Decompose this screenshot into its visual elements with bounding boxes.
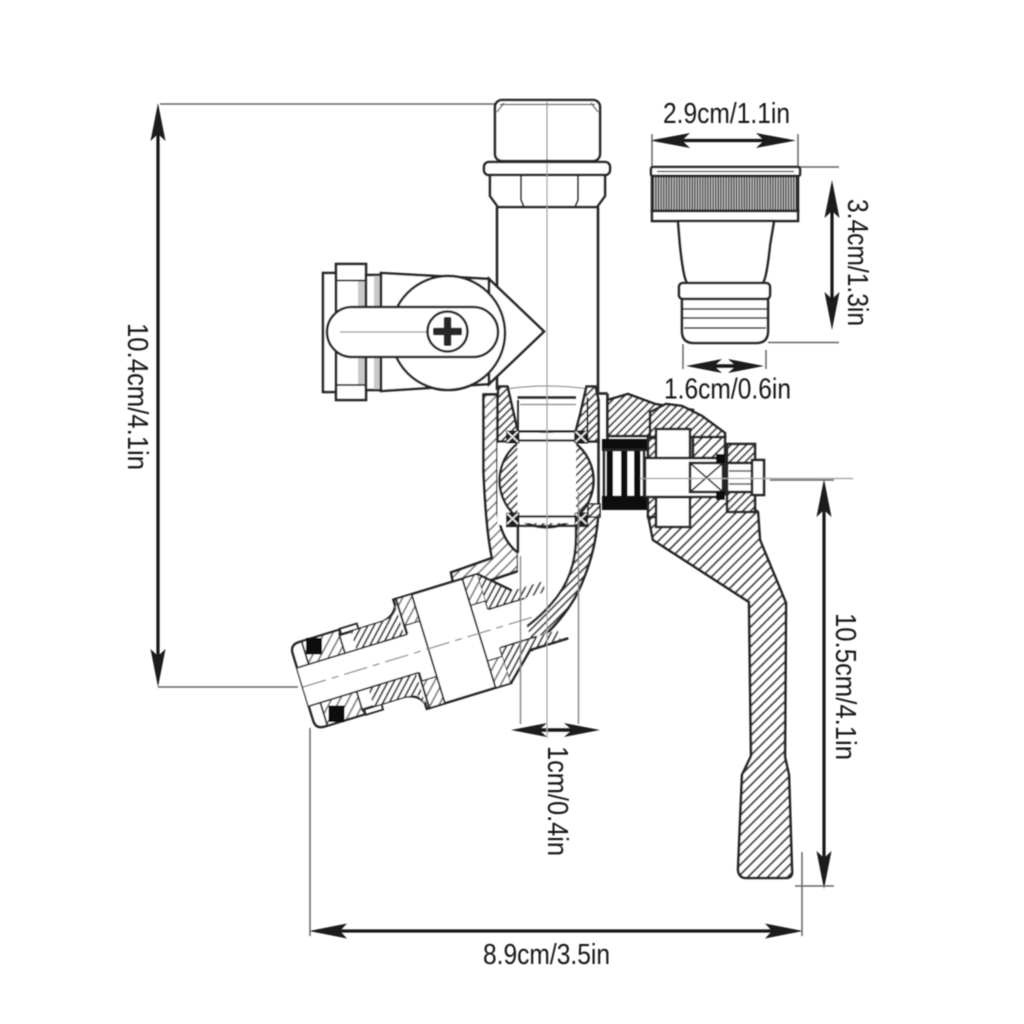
svg-text:3.4cm/1.3in: 3.4cm/1.3in (841, 199, 873, 326)
svg-text:10.5cm/4.1in: 10.5cm/4.1in (829, 613, 861, 760)
svg-text:10.4cm/4.1in: 10.4cm/4.1in (121, 323, 153, 470)
svg-text:2.9cm/1.1in: 2.9cm/1.1in (663, 98, 790, 130)
svg-text:8.9cm/3.5in: 8.9cm/3.5in (483, 939, 610, 971)
svg-text:1.6cm/0.6in: 1.6cm/0.6in (664, 374, 791, 406)
svg-text:1cm/0.4in: 1cm/0.4in (541, 746, 573, 856)
